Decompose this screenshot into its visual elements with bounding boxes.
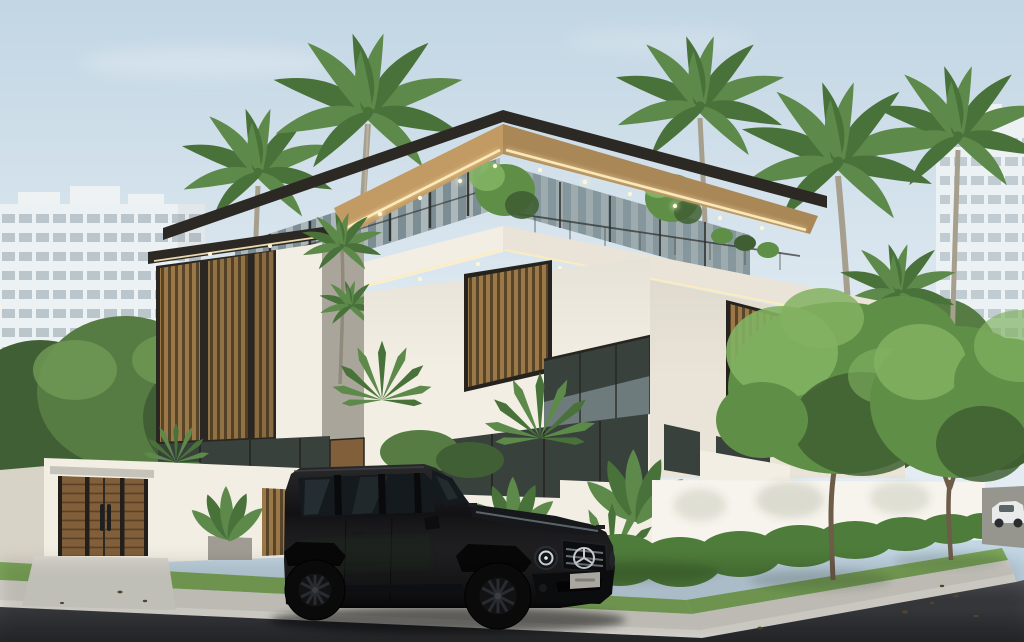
entry-gate	[44, 458, 160, 562]
door-handle	[398, 529, 411, 533]
white-pier	[276, 243, 322, 444]
c-pillar	[378, 474, 386, 514]
gate-handle	[107, 504, 111, 531]
window	[664, 424, 700, 476]
b-pillar	[334, 475, 342, 515]
scene-canvas	[0, 0, 1024, 642]
turn-signal	[596, 525, 605, 529]
door-handle	[352, 531, 365, 535]
vignette	[0, 560, 1024, 642]
turn-signal	[468, 503, 477, 507]
side-mirror	[424, 516, 440, 530]
architectural-render	[0, 0, 1024, 642]
car-windows	[999, 505, 1014, 512]
cross-street	[982, 486, 1024, 548]
cloud	[80, 46, 340, 78]
gate-handle	[100, 504, 104, 531]
